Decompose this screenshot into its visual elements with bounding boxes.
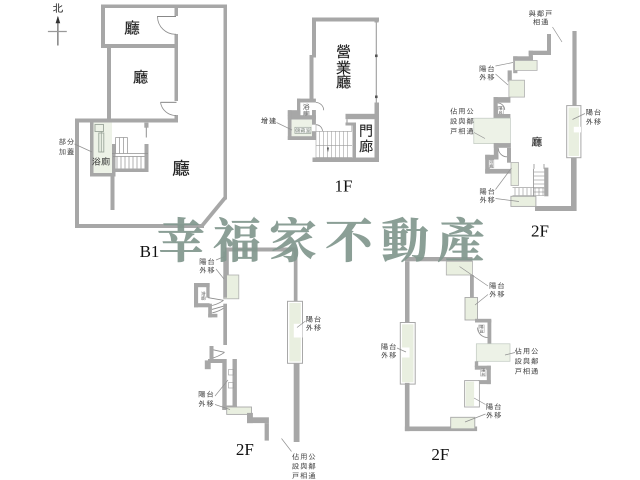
svg-text:2F: 2F <box>431 445 449 464</box>
svg-text:B1: B1 <box>140 242 160 261</box>
svg-text:2F: 2F <box>531 222 549 241</box>
svg-text:2F: 2F <box>236 440 254 459</box>
svg-text:1F: 1F <box>335 177 353 196</box>
